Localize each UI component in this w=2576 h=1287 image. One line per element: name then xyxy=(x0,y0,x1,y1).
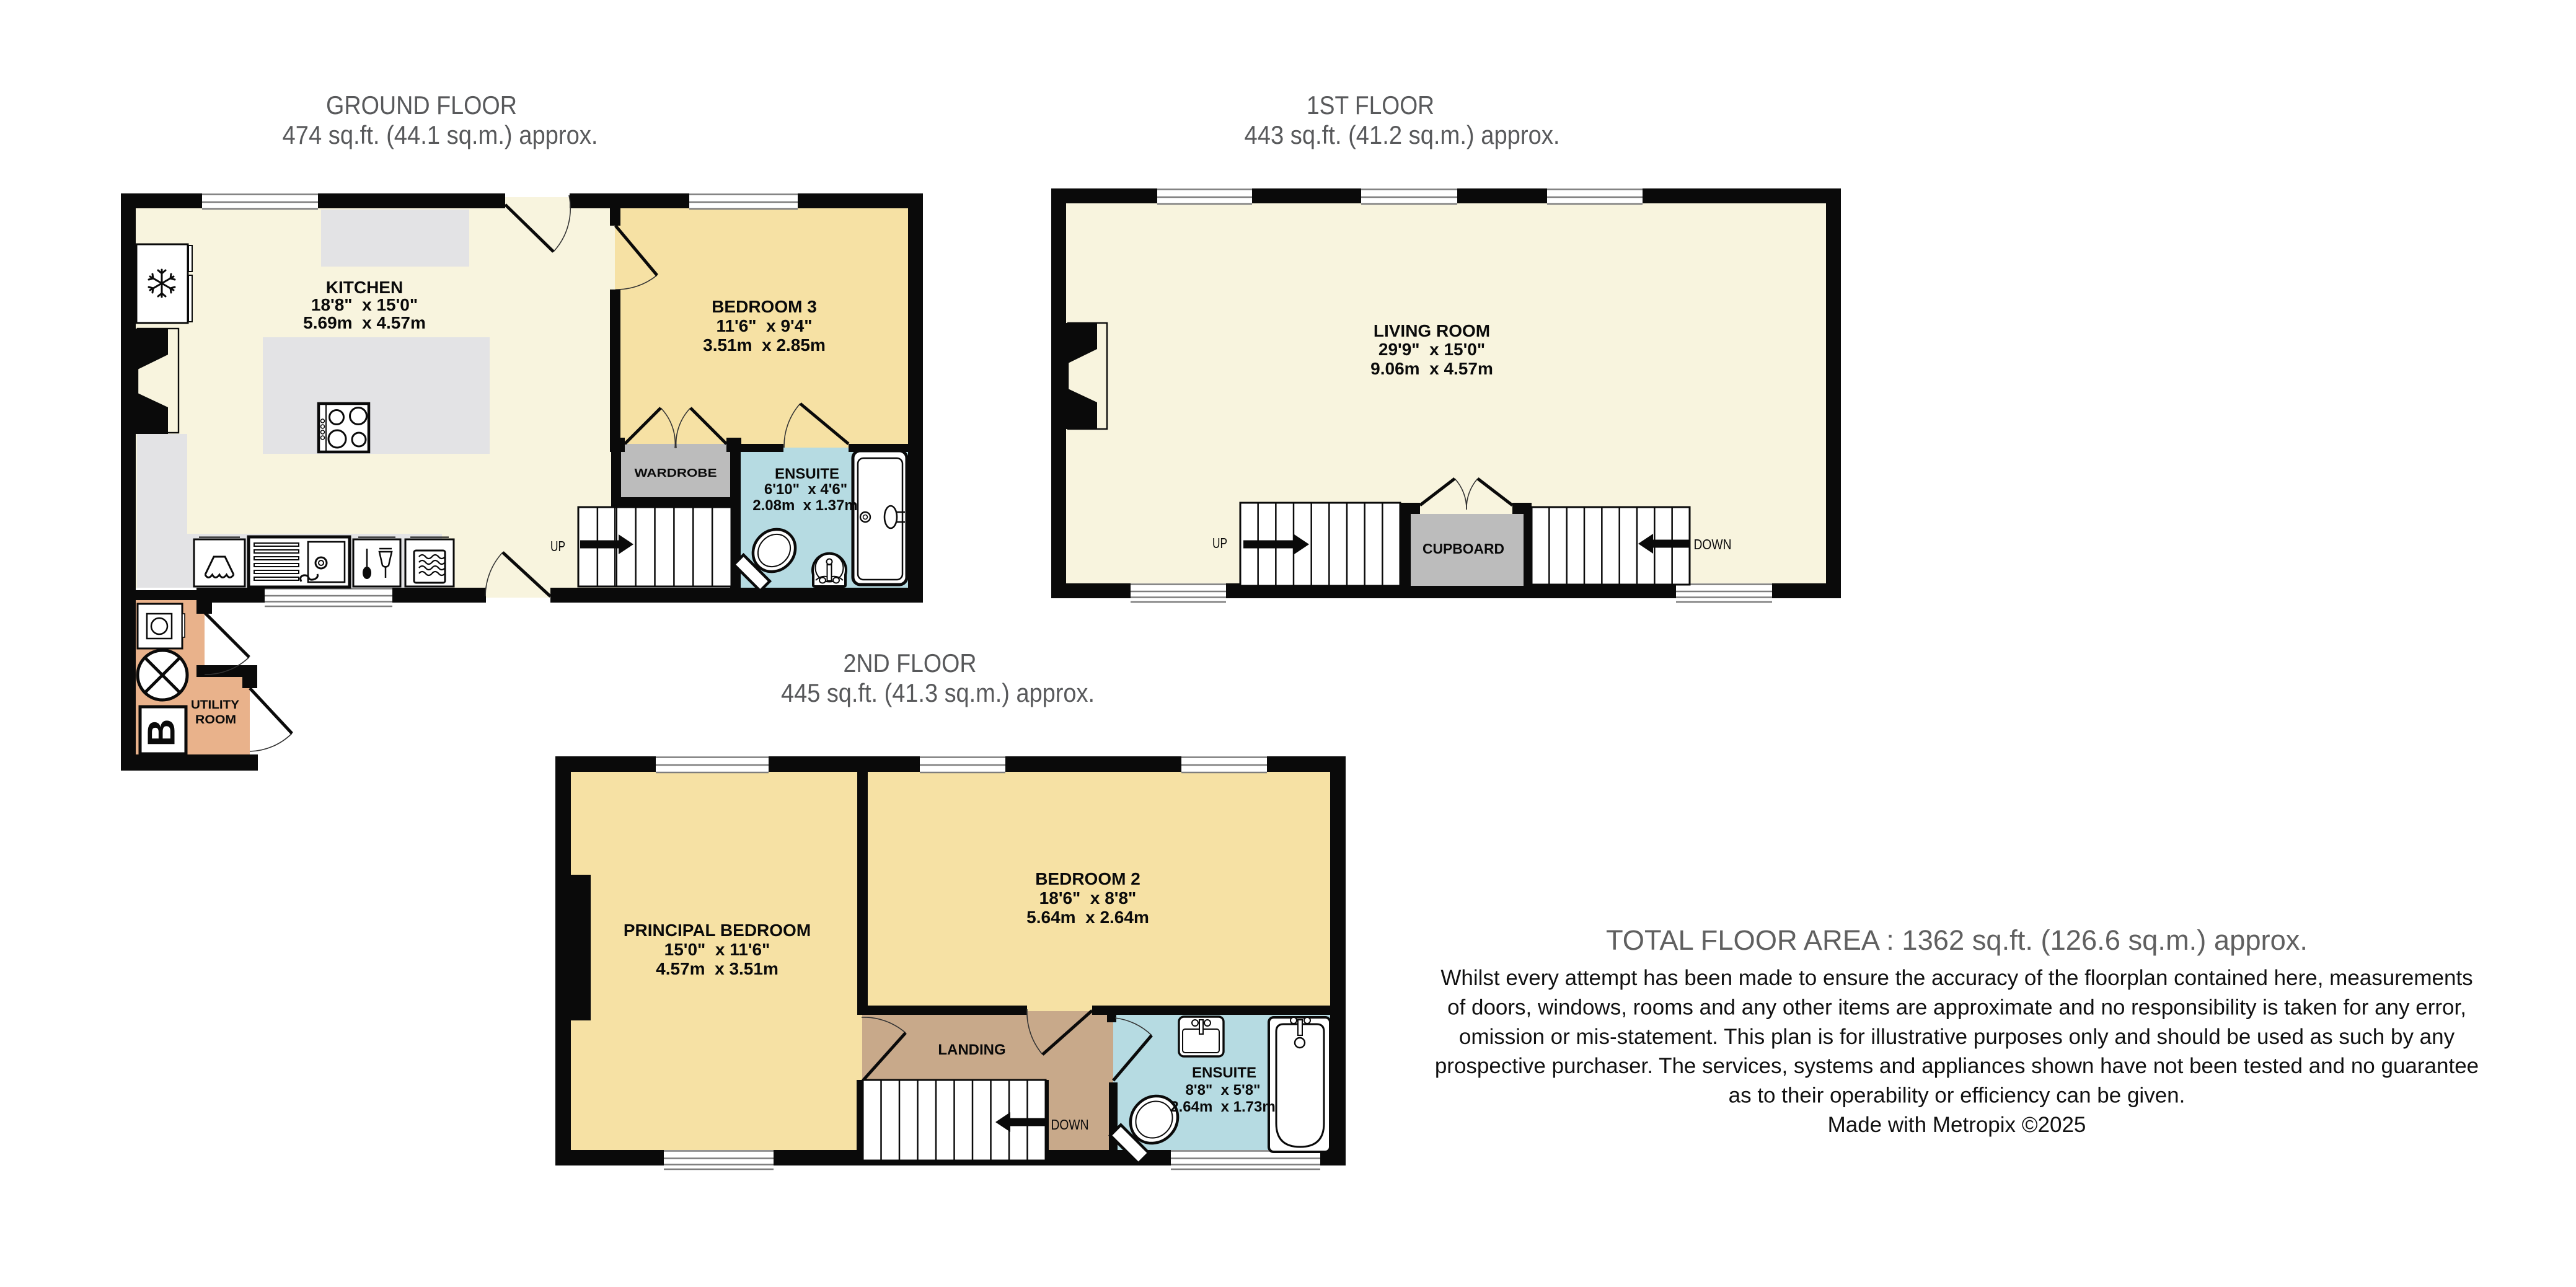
svg-text:UTILITY: UTILITY xyxy=(191,699,239,712)
svg-text:LIVING ROOM: LIVING ROOM xyxy=(1374,321,1490,340)
svg-text:ENSUITE: ENSUITE xyxy=(775,466,839,482)
svg-text:11'6" x 9'4": 11'6" x 9'4" xyxy=(716,316,812,335)
svg-text:9.06m x 4.57m: 9.06m x 4.57m xyxy=(1370,359,1493,378)
svg-text:B: B xyxy=(141,719,183,747)
svg-text:3.51m x 2.85m: 3.51m x 2.85m xyxy=(703,335,826,355)
svg-text:LANDING: LANDING xyxy=(938,1042,1005,1058)
svg-text:UP: UP xyxy=(550,538,565,554)
svg-text:6'10" x 4'6": 6'10" x 4'6" xyxy=(764,481,847,498)
svg-text:5.64m x 2.64m: 5.64m x 2.64m xyxy=(1026,908,1149,927)
svg-text:18'6" x 8'8": 18'6" x 8'8" xyxy=(1039,888,1137,908)
svg-text:WARDROBE: WARDROBE xyxy=(635,467,717,479)
svg-text:5.69m x 4.57m: 5.69m x 4.57m xyxy=(303,313,426,332)
svg-text:445 sq.ft. (41.3 sq.m.) approx: 445 sq.ft. (41.3 sq.m.) approx. xyxy=(781,678,1095,707)
svg-text:BEDROOM 3: BEDROOM 3 xyxy=(712,297,817,316)
svg-text:omission or mis-statement. Thi: omission or mis-statement. This plan is … xyxy=(1459,1025,2455,1049)
svg-text:KITCHEN: KITCHEN xyxy=(326,278,403,297)
svg-text:443 sq.ft. (41.2 sq.m.) approx: 443 sq.ft. (41.2 sq.m.) approx. xyxy=(1245,120,1560,149)
svg-text:DOWN: DOWN xyxy=(1694,536,1732,552)
svg-text:1ST FLOOR: 1ST FLOOR xyxy=(1307,91,1434,120)
svg-text:as to their operability or eff: as to their operability or efficiency ca… xyxy=(1729,1084,2186,1108)
svg-text:18'8" x 15'0": 18'8" x 15'0" xyxy=(311,295,418,314)
svg-text:BEDROOM 2: BEDROOM 2 xyxy=(1035,869,1140,888)
svg-text:2.08m x 1.37m: 2.08m x 1.37m xyxy=(752,497,857,514)
svg-text:of doors, windows, rooms and a: of doors, windows, rooms and any other i… xyxy=(1447,995,2466,1019)
svg-text:TOTAL FLOOR AREA : 1362 sq.ft.: TOTAL FLOOR AREA : 1362 sq.ft. (126.6 sq… xyxy=(1606,924,2308,956)
svg-text:CUPBOARD: CUPBOARD xyxy=(1423,541,1504,557)
svg-text:DOWN: DOWN xyxy=(1051,1117,1089,1133)
svg-text:Whilst every attempt has been: Whilst every attempt has been made to en… xyxy=(1440,966,2472,990)
svg-text:PRINCIPAL BEDROOM: PRINCIPAL BEDROOM xyxy=(624,921,811,940)
svg-text:474 sq.ft. (44.1 sq.m.) approx: 474 sq.ft. (44.1 sq.m.) approx. xyxy=(283,120,598,149)
svg-text:2ND FLOOR: 2ND FLOOR xyxy=(844,648,977,678)
svg-text:2.64m x 1.73m: 2.64m x 1.73m xyxy=(1170,1099,1275,1115)
svg-text:Made with Metropix ©2025: Made with Metropix ©2025 xyxy=(1828,1113,2086,1137)
svg-text:prospective purchaser. The ser: prospective purchaser. The services, sys… xyxy=(1435,1054,2479,1078)
svg-text:GROUND FLOOR: GROUND FLOOR xyxy=(326,91,517,120)
svg-text:15'0" x 11'6": 15'0" x 11'6" xyxy=(664,940,770,959)
svg-text:8'8" x 5'8": 8'8" x 5'8" xyxy=(1186,1082,1261,1099)
svg-text:29'9" x 15'0": 29'9" x 15'0" xyxy=(1378,340,1485,359)
svg-text:ENSUITE: ENSUITE xyxy=(1192,1064,1256,1081)
svg-text:UP: UP xyxy=(1212,535,1227,551)
svg-text:ROOM: ROOM xyxy=(195,714,236,727)
svg-text:4.57m x 3.51m: 4.57m x 3.51m xyxy=(656,959,779,978)
